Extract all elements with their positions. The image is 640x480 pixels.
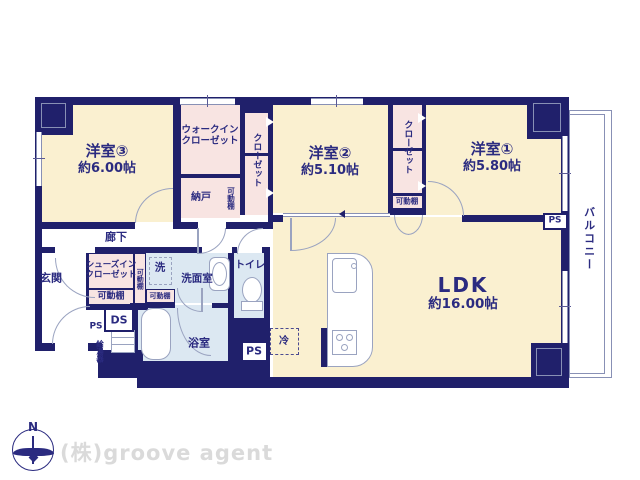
closet2-chevron-top-icon <box>418 113 426 123</box>
bed3-label: 洋室③ <box>86 142 129 160</box>
stove-burner-3-icon <box>341 344 348 351</box>
closet1-label: クローゼット <box>251 133 262 187</box>
shelf2-label: 可動棚 <box>396 197 419 206</box>
door-toilet <box>237 228 263 254</box>
shelf3-label: 可動棚 <box>97 292 124 303</box>
ldk-size: 約16.00帖 <box>428 296 498 312</box>
bed1-size: 約5.80帖 <box>463 159 521 175</box>
wall-bath-top-b <box>212 303 228 308</box>
nando-label: 納戸 <box>191 192 211 204</box>
bath-label: 浴室 <box>188 336 210 349</box>
bathtub-icon <box>141 308 171 360</box>
wall-top <box>35 97 568 105</box>
water-heater-line-2 <box>112 344 134 345</box>
wall-bed3-wic <box>173 97 181 229</box>
ps-bottom-label: PS <box>246 344 262 357</box>
bed1-label: 洋室① <box>471 140 514 158</box>
toilet-tank-icon <box>241 301 263 311</box>
window-right-ldk <box>562 271 568 343</box>
closet2-chevron-bottom-icon <box>418 181 426 191</box>
wall-wic-nando <box>181 174 240 178</box>
closet2-label: クローゼット <box>402 120 413 174</box>
pillar-top-right-outline <box>533 103 561 132</box>
compass-north-label: N <box>28 420 38 434</box>
watermark: (株)groove agent <box>60 437 273 467</box>
shelf5-label: 可動棚 <box>150 292 171 300</box>
window-top-bed2 <box>311 98 363 105</box>
stove-burner-1-icon <box>336 334 343 341</box>
door-ldk-leaf <box>290 218 292 251</box>
sliding-door-arrow-icon <box>339 210 345 218</box>
wic-label: ウォークインクローゼット <box>179 125 241 148</box>
kitchen-faucet-icon <box>351 263 357 269</box>
door-nando <box>198 228 226 254</box>
closet1-chevron-bottom-icon <box>266 188 274 198</box>
ps-right-label: PS <box>548 216 561 227</box>
shelf1-label: 可動棚 <box>227 187 236 210</box>
pillar-bottom-right-outline <box>536 348 562 376</box>
door-entrance <box>52 306 90 344</box>
door-nando-leaf <box>197 228 199 254</box>
washroom-label: 洗面室 <box>181 273 213 286</box>
pillar-top-left-outline <box>41 103 66 128</box>
window-left-bed3 <box>36 132 42 186</box>
ps-left-label: PS <box>89 322 102 333</box>
wall-block-closet1-top <box>240 97 273 113</box>
wall-wic-closet1 <box>240 104 245 215</box>
water-heater-line-1 <box>112 337 134 338</box>
ds-label: DS <box>110 313 127 326</box>
bed2-size: 約5.10帖 <box>301 163 359 179</box>
window-tick-3 <box>33 158 45 159</box>
window-tick-2 <box>336 95 337 107</box>
water-heater-label: 給湯器 <box>96 340 105 363</box>
laundry-label: 洗 <box>155 262 166 275</box>
stove-icon <box>332 330 357 355</box>
washbasin-bowl-icon <box>212 262 227 286</box>
genkan-label: 玄関 <box>40 271 62 284</box>
wall-closet2-bottom <box>388 208 426 215</box>
fridge-label: 冷 <box>279 336 289 348</box>
wall-corr-genkan-b <box>95 247 202 253</box>
toilet-label: トイレ <box>235 260 265 272</box>
sic-label: シューズインクローゼット <box>84 260 138 280</box>
shelf4-label: 可動棚 <box>136 269 144 290</box>
toilet-bowl-icon <box>242 277 262 303</box>
wall-bottom <box>137 377 568 388</box>
wall-ldk-stub <box>268 215 283 222</box>
wall-mid-a <box>35 222 135 229</box>
sliding-door-bed2 <box>283 213 390 217</box>
stove-burner-2-icon <box>346 334 353 341</box>
floor-plan: 洋室③ 約6.00帖 ウォークインクローゼット クローゼット 納戸 可動棚 洋室… <box>0 0 640 480</box>
balcony-label: バルコニー <box>582 207 595 272</box>
ldk-label: LDK <box>438 273 489 297</box>
closet1-chevron-top-icon <box>266 117 274 127</box>
water-heater-icon <box>111 330 135 353</box>
wall-genkan-bottom-left <box>35 343 55 351</box>
bed2-label: 洋室② <box>309 144 352 162</box>
wall-bed2-closet2 <box>388 97 393 215</box>
window-tick-1 <box>207 95 208 107</box>
wall-corr-genkan-a <box>35 247 55 253</box>
corridor-label: 廊下 <box>105 230 127 243</box>
bed3-size: 約6.00帖 <box>78 161 136 177</box>
wall-mid-b <box>173 222 198 229</box>
